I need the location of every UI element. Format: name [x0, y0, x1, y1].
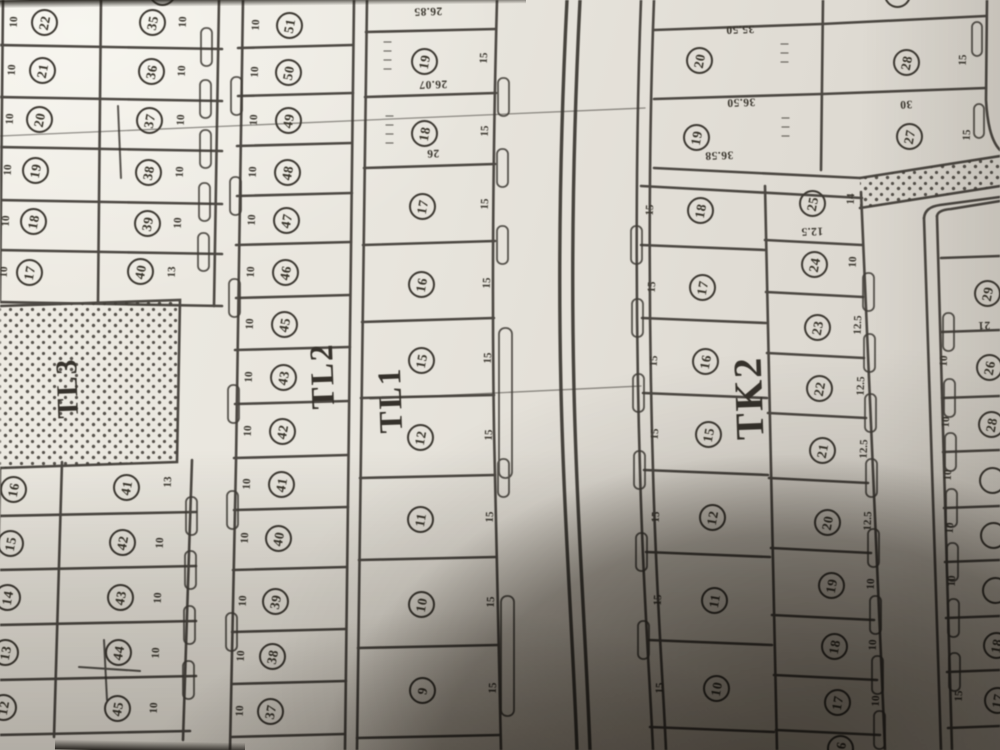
- plot-circle: 36: [138, 58, 165, 85]
- measurement-label: 36.50: [715, 95, 767, 109]
- plot-circle: 37: [257, 698, 284, 725]
- measurement-label: 26.07: [407, 77, 459, 91]
- frontage-label: 10: [174, 105, 187, 135]
- frontage-label: 10: [173, 157, 186, 187]
- plot-circle: 16: [692, 348, 719, 375]
- plot-number: 18: [24, 213, 42, 230]
- plot-number: 44: [109, 644, 127, 661]
- plot-number: 51: [280, 17, 298, 34]
- plot-number: 36: [142, 63, 160, 80]
- plot-circle: 17: [409, 193, 436, 220]
- plot-circle: 9: [409, 677, 436, 704]
- plot-number: 26: [980, 359, 998, 376]
- plot-circle: 17: [16, 259, 43, 286]
- plot-circle: 16: [408, 271, 435, 298]
- plot-number: 18: [987, 637, 1000, 654]
- frontage-label: 10: [246, 157, 259, 187]
- plot-circle: 43: [107, 584, 134, 611]
- plot-number: 19: [415, 53, 433, 70]
- plot-circle: 29: [974, 280, 1000, 307]
- measurement-label: 12.5: [786, 224, 838, 238]
- frontage-label: 10: [0, 257, 11, 287]
- measurement-label: 30: [880, 97, 932, 111]
- frontage-label: 15: [952, 681, 965, 711]
- frontage-label: 10: [7, 7, 20, 37]
- plot-circle: 18: [821, 633, 848, 660]
- plot-number: 20: [30, 111, 48, 128]
- plot-number: 17: [693, 279, 711, 296]
- frontage-label: 12.5: [857, 434, 870, 464]
- plot-number: 14: [0, 589, 17, 606]
- plot-number: 17: [988, 692, 1000, 709]
- plot-number: 49: [279, 112, 297, 129]
- plot-circle: 24: [801, 251, 828, 278]
- frontage-label: 10: [0, 206, 13, 236]
- plot-circle: 17: [824, 689, 851, 716]
- frontage-label: 10: [176, 7, 189, 37]
- plot-circle: 43: [270, 364, 297, 391]
- plot-circle: 19: [22, 157, 49, 184]
- frontage-label: 15: [480, 268, 493, 298]
- plot-circle: 23: [804, 314, 831, 341]
- plot-circle: 17: [689, 274, 716, 301]
- frontage-label: 10: [241, 416, 254, 446]
- plot-number: 19: [822, 577, 840, 594]
- plot-circle: 48: [274, 159, 301, 186]
- frontage-label: 15: [483, 502, 496, 532]
- block-label: TL1: [368, 324, 413, 475]
- frontage-label: 10: [244, 257, 257, 287]
- plot-number: 20: [818, 514, 836, 531]
- plot-circle: 22: [31, 9, 58, 36]
- frontage-label: 10: [1, 155, 14, 185]
- frontage-label: 10: [175, 56, 188, 86]
- plot-number: 16: [412, 276, 430, 293]
- frontage-label: 13: [165, 257, 178, 287]
- frontage-label: 10: [866, 630, 879, 660]
- frontage-label: 15: [956, 45, 969, 75]
- plot-number: 45: [275, 316, 293, 333]
- plot-number: 12: [411, 429, 429, 446]
- plot-number: 29: [978, 285, 996, 302]
- plot-circle: 44: [105, 639, 132, 666]
- plot-circle: 42: [109, 529, 136, 556]
- block-label: TL3: [45, 312, 90, 463]
- plot-circle: [979, 467, 1000, 494]
- plot-number: 9: [414, 686, 431, 696]
- frontage-label: 10: [5, 55, 18, 85]
- plot-circle: 46: [272, 259, 299, 286]
- plot-number: 18: [415, 125, 433, 142]
- plot-circle: 11: [407, 506, 434, 533]
- plot-circle: 42: [269, 418, 296, 445]
- plot-number: 24: [805, 256, 823, 273]
- plot-circle: 20: [26, 106, 53, 133]
- measurement-label: 26.85: [402, 4, 454, 18]
- plot-circle: 41: [268, 471, 295, 498]
- frontage-label: 10: [236, 586, 249, 616]
- plot-circle: 10: [408, 591, 435, 618]
- frontage-label: 12.5: [861, 506, 874, 536]
- plot-number: 40: [269, 530, 287, 547]
- plot-circle: 38: [259, 643, 286, 670]
- plot-number: 46: [276, 264, 294, 281]
- frontage-label: 10: [248, 57, 261, 87]
- frontage-label: 13: [161, 467, 174, 497]
- plot-number: 22: [35, 14, 53, 31]
- frontage-label: 15: [651, 585, 664, 615]
- plot-circle: 18: [687, 197, 714, 224]
- block-label: TK2: [726, 322, 771, 473]
- plot-circle: 18: [20, 208, 47, 235]
- plot-number: 22: [810, 380, 828, 397]
- plot-number: 21: [813, 442, 831, 459]
- frontage-label: 15: [477, 43, 490, 73]
- plot-number: 40: [131, 263, 149, 280]
- plot-number: 17: [828, 694, 846, 711]
- plot-number: 23: [808, 319, 826, 336]
- frontage-label: 10: [941, 460, 954, 490]
- plot-number: 10: [412, 596, 430, 613]
- plot-number: 25: [803, 195, 821, 212]
- plot-circle: 45: [271, 311, 298, 338]
- plot-circle: 47: [273, 207, 300, 234]
- plot-number: 10: [707, 680, 725, 697]
- frontage-label: 10: [242, 362, 255, 392]
- plot-circle: 21: [809, 437, 836, 464]
- plot-circle: 40: [127, 258, 154, 285]
- plot-circle: 15: [408, 347, 435, 374]
- frontage-label: 10: [149, 638, 162, 668]
- plot-circle: 19: [818, 572, 845, 599]
- frontage-label: 10: [945, 566, 958, 596]
- frontage-label: 15: [481, 343, 494, 373]
- plot-circle: 37: [136, 107, 163, 134]
- cadastral-map-photo: TL3TL2TL1TK22210211020101910181017101615…: [0, 0, 1000, 750]
- frontage-label: 15: [643, 195, 656, 225]
- frontage-label: 10: [153, 528, 166, 558]
- plot-number: 42: [273, 423, 291, 440]
- frontage-label: 10: [247, 105, 260, 135]
- plot-number: 38: [263, 648, 281, 665]
- plot-number: 11: [705, 592, 723, 608]
- plot-number: 27: [900, 128, 918, 145]
- plot-number: 21: [33, 62, 51, 79]
- frontage-label: 15: [645, 272, 658, 302]
- plot-number: 35: [143, 14, 161, 31]
- frontage-label: 15: [960, 120, 973, 150]
- frontage-label: 10: [846, 247, 859, 277]
- plot-number: 47: [277, 212, 295, 229]
- frontage-label: 15: [484, 587, 497, 617]
- plot-number: 20: [690, 52, 708, 69]
- frontage-label: 10: [171, 208, 184, 238]
- frontage-label: 10: [240, 469, 253, 499]
- plot-circle: 45: [104, 695, 131, 722]
- plot-number: 39: [266, 593, 284, 610]
- frontage-label: 15: [649, 502, 662, 532]
- plot-number: 43: [274, 369, 292, 386]
- plot-number: 45: [108, 700, 126, 717]
- plot-circle: 51: [276, 12, 303, 39]
- frontage-label: 15: [478, 116, 491, 146]
- plot-circle: 18: [411, 120, 438, 147]
- frontage-label: 10: [245, 205, 258, 235]
- plot-number: 48: [278, 164, 296, 181]
- plot-circle: 28: [978, 411, 1000, 438]
- frontage-label: 10: [3, 104, 16, 134]
- plot-circle: 16: [0, 476, 27, 503]
- plot-number: 19: [687, 129, 705, 146]
- plot-number: 11: [411, 511, 429, 527]
- plot-number: 16: [696, 353, 714, 370]
- plot-circle: 25: [799, 190, 826, 217]
- plot-number: 16: [4, 481, 22, 498]
- frontage-label: 15: [486, 673, 499, 703]
- plot-circle: 10: [703, 675, 730, 702]
- plot-circle: 35: [139, 9, 166, 36]
- measurement-label: 21: [958, 318, 1000, 332]
- plot-number: 37: [140, 112, 158, 129]
- plot-circle: 12: [699, 504, 726, 531]
- plot-number: 28: [897, 54, 915, 71]
- frontage-label: 10: [234, 641, 247, 671]
- plot-number: 37: [261, 703, 279, 720]
- plot-number: 42: [113, 534, 131, 551]
- plot-number: 28: [982, 416, 1000, 433]
- frontage-label: 15: [647, 346, 660, 376]
- plot-number: 15: [412, 352, 430, 369]
- plot-number: 19: [26, 162, 44, 179]
- plot-circle: 40: [265, 525, 292, 552]
- frontage-label: 15: [648, 419, 661, 449]
- frontage-label: 10: [233, 696, 246, 726]
- plot-circle: 39: [262, 588, 289, 615]
- plot-circle: 12: [407, 424, 434, 451]
- plot-circle: 22: [806, 375, 833, 402]
- frontage-label: 12.5: [851, 310, 864, 340]
- frontage-label: 15: [653, 673, 666, 703]
- plot-circle: 41: [113, 474, 140, 501]
- plot-circle: 19: [683, 124, 710, 151]
- plot-circle: 20: [686, 47, 713, 74]
- measurement-label: 36.58: [693, 148, 745, 162]
- map-canvas: TL3TL2TL1TK22210211020101910181017101615…: [0, 0, 1000, 750]
- plot-number: 41: [117, 479, 135, 496]
- plot-circle: 20: [814, 509, 841, 536]
- frontage-label: 14: [844, 184, 857, 214]
- plot-number: 39: [138, 215, 156, 232]
- plot-number: 18: [691, 202, 709, 219]
- plot-number: 38: [139, 164, 157, 181]
- plot-number: 16: [831, 740, 849, 750]
- plot-circle: 19: [411, 48, 438, 75]
- frontage-label: 10: [151, 583, 164, 613]
- plot-circle: 49: [275, 107, 302, 134]
- plot-circle: [980, 522, 1000, 549]
- plot-circle: 50: [275, 59, 302, 86]
- frontage-label: 10: [243, 309, 256, 339]
- plot-circle: 11: [701, 587, 728, 614]
- frontage-label: 10: [249, 10, 262, 40]
- frontage-label: 15: [482, 420, 495, 450]
- plot-number: 18: [825, 638, 843, 655]
- plot-circle: 26: [976, 354, 1000, 381]
- plot-number: 15: [1, 535, 19, 552]
- plot-number: 15: [699, 426, 717, 443]
- frontage-label: 10: [937, 346, 950, 376]
- frontage-label: 10: [939, 407, 952, 437]
- plot-number: 41: [272, 476, 290, 493]
- frontage-label: 10: [238, 523, 251, 553]
- frontage-label: 10: [869, 686, 882, 716]
- plot-circle: 38: [135, 159, 162, 186]
- plot-number: 43: [111, 589, 129, 606]
- plot-number: 12: [703, 509, 721, 526]
- plot-circle: 21: [29, 57, 56, 84]
- plot-number: 17: [413, 198, 431, 215]
- plot-number: 50: [279, 64, 297, 81]
- plot-number: 17: [20, 264, 38, 281]
- frontage-label: 15: [478, 189, 491, 219]
- block-label: TL2: [300, 300, 345, 451]
- frontage-label: 10: [943, 513, 956, 543]
- plot-number: 13: [0, 644, 15, 661]
- frontage-label: 12.5: [854, 371, 867, 401]
- frontage-label: 10: [147, 693, 160, 723]
- plot-circle: 39: [134, 210, 161, 237]
- plot-number: 12: [0, 699, 13, 716]
- plot-circle: 27: [896, 123, 923, 150]
- plot-circle: 28: [893, 49, 920, 76]
- plot-circle: 15: [695, 421, 722, 448]
- measurement-label: 35.50: [714, 22, 766, 36]
- measurement-label: 26: [407, 146, 459, 160]
- frontage-label: 10: [864, 569, 877, 599]
